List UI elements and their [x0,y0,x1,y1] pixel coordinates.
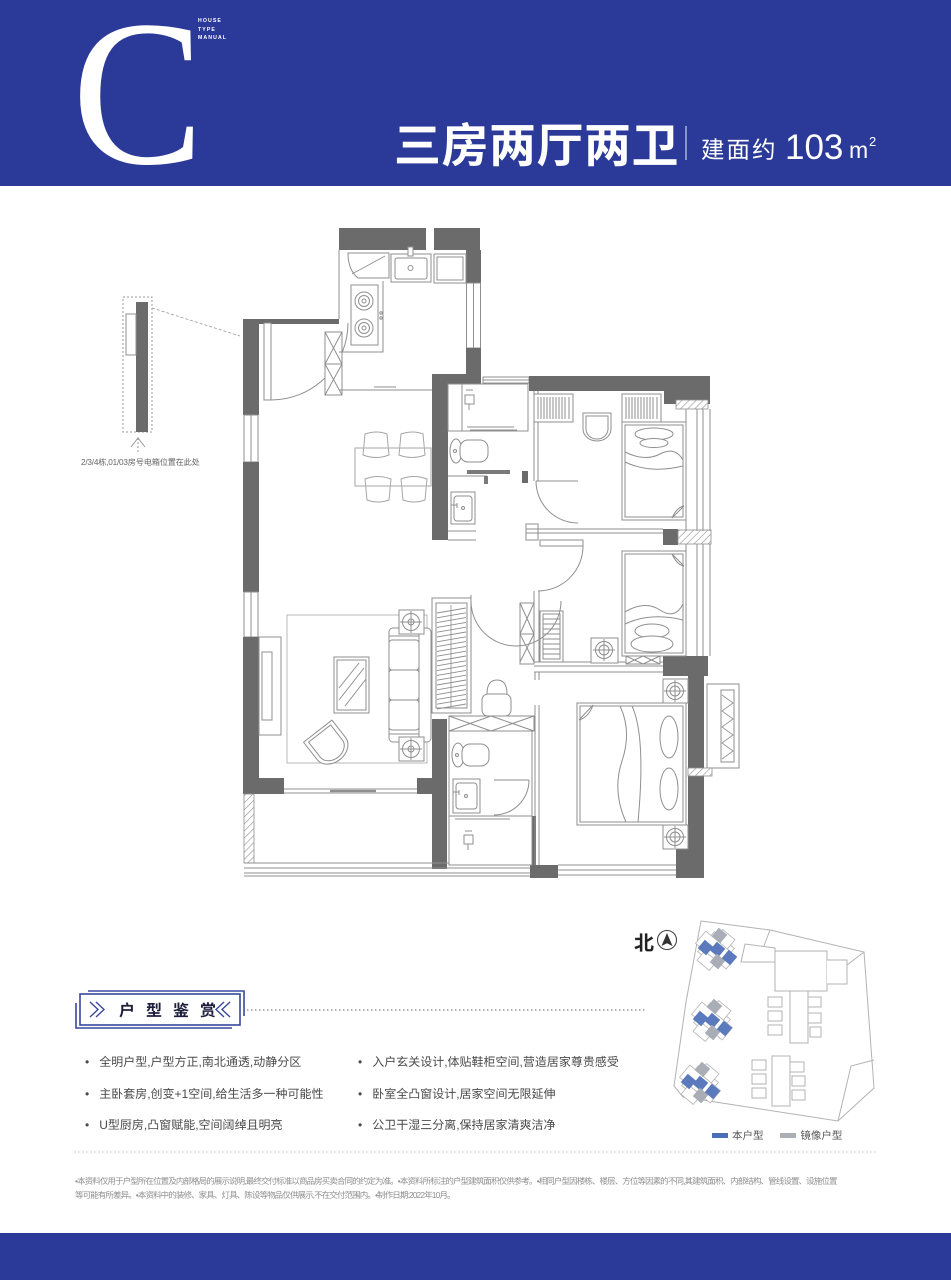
svg-text:户型鉴赏: 户型鉴赏 [119,997,227,1021]
